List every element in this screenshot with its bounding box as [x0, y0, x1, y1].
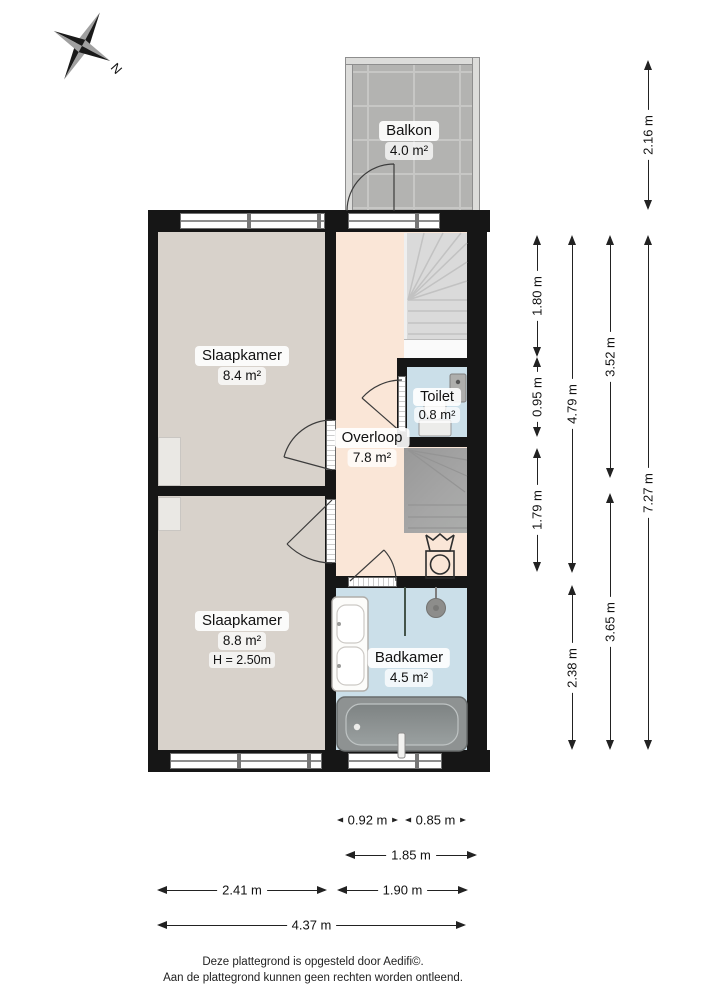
room-name: Overloop [335, 428, 410, 448]
wall-bedrooms-divider [148, 486, 336, 496]
label-slaapkamer-onder: Slaapkamer 8.8 m² H = 2.50m [195, 611, 289, 668]
footer-credits: Deze plattegrond is opgesteld door Aedif… [0, 954, 626, 986]
floorplan-page: N [0, 0, 707, 1000]
compass-north-label: N [108, 60, 125, 77]
label-overloop: Overloop 7.8 m² [335, 428, 410, 467]
compass-rose: N [40, 6, 170, 96]
window-badkamer [348, 753, 442, 769]
room-ceiling-height: H = 2.50m [209, 652, 275, 668]
staircase-upper [404, 233, 467, 339]
room-name: Toilet [413, 388, 461, 406]
door-leaf-toilet [398, 376, 406, 432]
footer-line-2: Aan de plattegrond kunnen geen rechten w… [0, 970, 626, 986]
label-badkamer: Badkamer 4.5 m² [368, 648, 450, 687]
room-name: Slaapkamer [195, 611, 289, 631]
door-leaf-badkamer [348, 577, 397, 587]
label-toilet: Toilet 0.8 m² [413, 388, 461, 423]
room-area: 7.8 m² [348, 449, 396, 467]
label-slaapkamer-boven: Slaapkamer 8.4 m² [195, 346, 289, 385]
wall-right [467, 210, 487, 772]
balkon-railing-left [345, 57, 353, 212]
door-leaf-slaapkamer-onder [326, 499, 336, 563]
room-name: Slaapkamer [195, 346, 289, 366]
room-area: 4.5 m² [385, 669, 433, 687]
staircase-landing [404, 339, 467, 358]
room-name: Balkon [379, 121, 439, 141]
staircase-lower [404, 448, 467, 533]
wall-badkamer-west [325, 578, 336, 750]
wall-toilet-north [397, 358, 467, 367]
label-balkon: Balkon 4.0 m² [379, 121, 439, 160]
window-bottom-bedroom [170, 753, 322, 769]
room-area: 4.0 m² [385, 142, 433, 160]
wall-niche-lower [158, 497, 181, 531]
window-balkon-door [348, 213, 440, 229]
footer-line-1: Deze plattegrond is opgesteld door Aedif… [0, 954, 626, 970]
balkon-railing-right [472, 57, 480, 212]
room-area: 8.8 m² [218, 632, 266, 650]
room-name: Badkamer [368, 648, 450, 668]
wall-niche-upper [158, 437, 181, 486]
balkon-railing-top [345, 57, 480, 65]
room-area: 8.4 m² [218, 367, 266, 385]
room-area: 0.8 m² [414, 407, 461, 423]
window-top-bedroom [180, 213, 325, 229]
